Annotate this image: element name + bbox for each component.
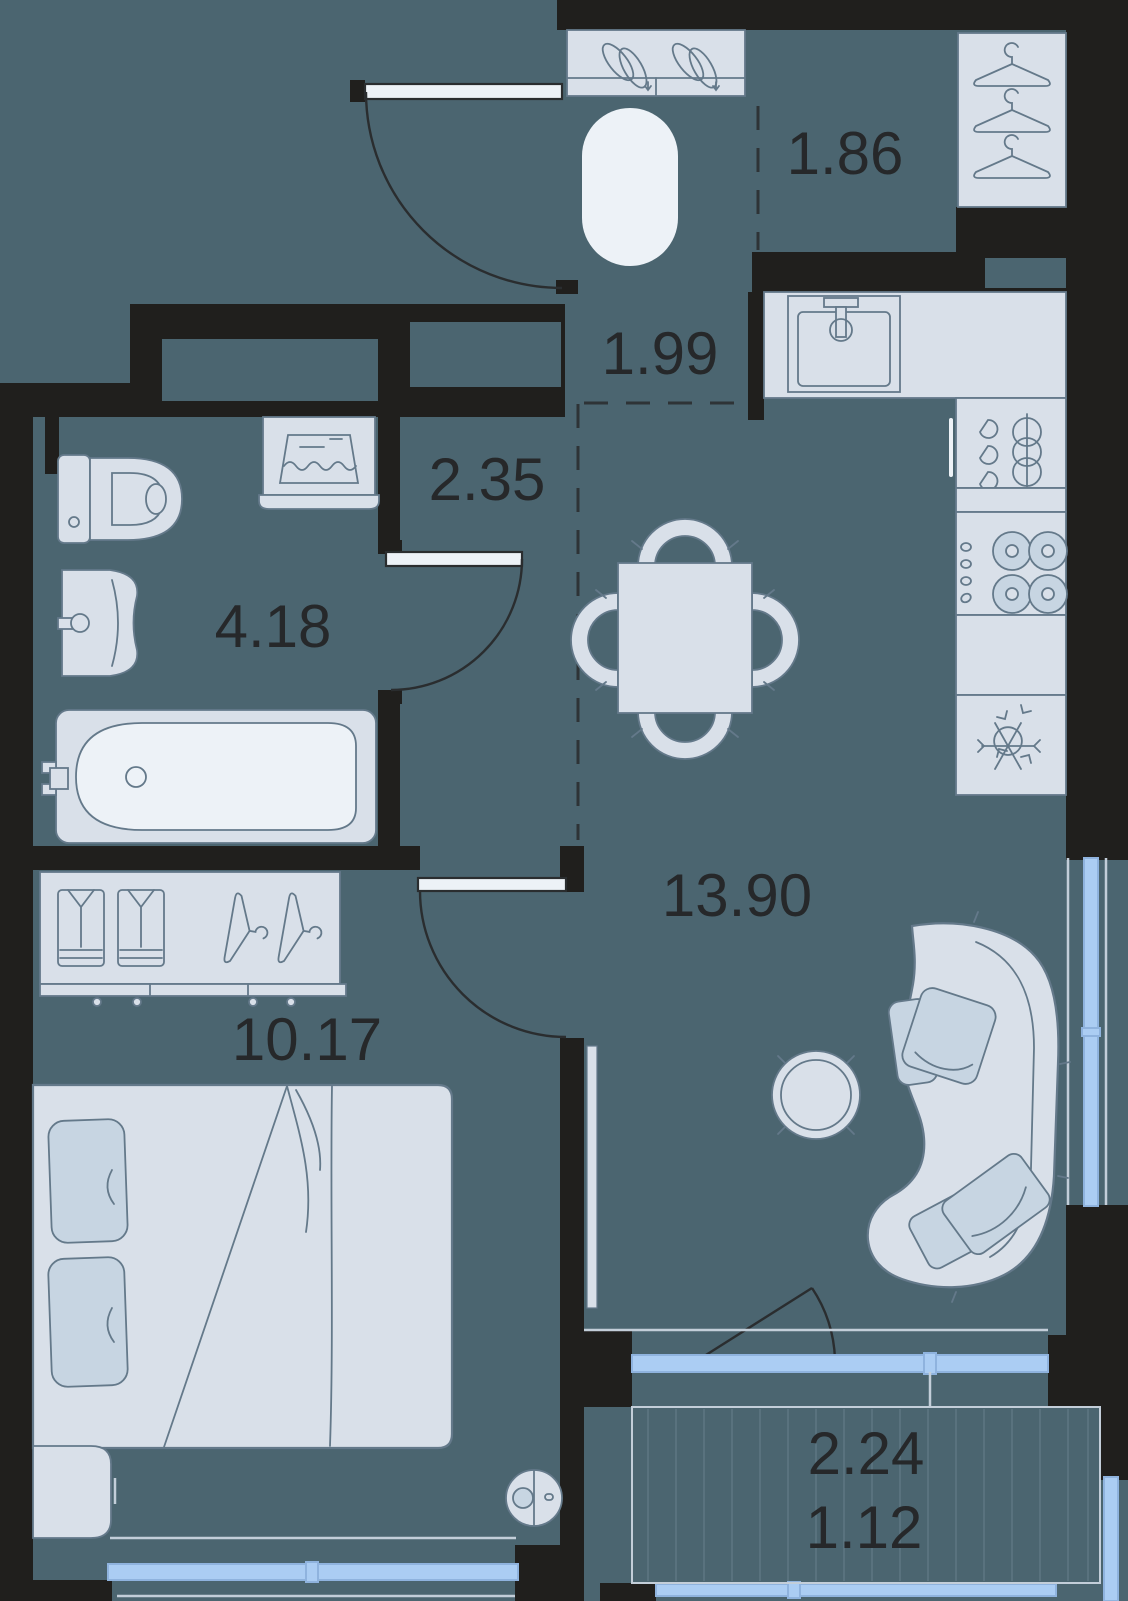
tv-console-icon: [587, 1046, 597, 1308]
coffee-table-icon: [772, 1051, 860, 1139]
room-label-corridor: 2.35: [429, 446, 546, 513]
room-label-balcony-total: 2.24: [808, 1420, 925, 1487]
fridge-snowflake-icon: [956, 695, 1066, 795]
stove-icon: [956, 512, 1067, 615]
bed-icon: [33, 1085, 452, 1448]
pillow-icon: [48, 1257, 128, 1388]
toilet-icon: [58, 455, 182, 543]
kitchen-sink-icon: [788, 296, 900, 392]
room-label-bathroom: 4.18: [215, 593, 332, 660]
room-label-wardrobe: 1.86: [787, 120, 904, 187]
room-label-balcony-reduced: 1.12: [806, 1494, 923, 1561]
floor-plan-page: 1.86 1.99 2.35 4.18 13.90 10.17 2.24 1.1…: [0, 0, 1128, 1601]
robot-vacuum-icon: [506, 1470, 562, 1526]
shoe-cabinet-icon: [567, 30, 745, 96]
room-label-hallway: 1.99: [602, 320, 719, 387]
dish-rack-icon: [956, 398, 1066, 488]
bathtub-icon: [42, 710, 376, 843]
bedroom-wardrobe: [40, 872, 346, 1006]
room-label-bedroom: 10.17: [232, 1006, 382, 1073]
room-label-kitchen-living: 13.90: [662, 862, 812, 929]
floor-plan: 1.86 1.99 2.35 4.18 13.90 10.17 2.24 1.1…: [0, 0, 1128, 1601]
dining-table-icon: [618, 563, 752, 713]
rug-icon: [582, 108, 678, 266]
bathroom-sink-icon: [58, 570, 137, 676]
pillow-icon: [48, 1119, 128, 1244]
hall-closet: [958, 33, 1066, 207]
nightstand-icon: [33, 1446, 111, 1538]
washing-machine-icon: [259, 417, 379, 509]
